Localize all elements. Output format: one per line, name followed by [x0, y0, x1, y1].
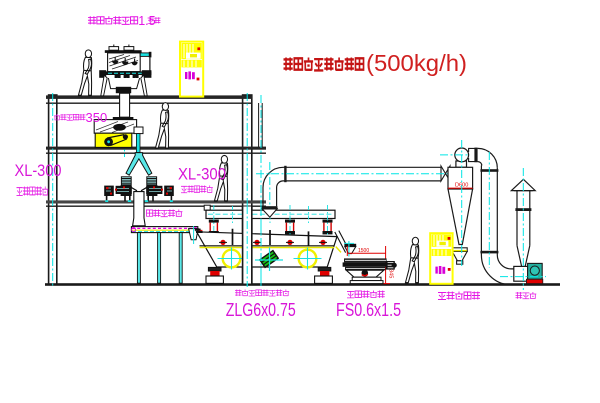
svg-text:1500: 1500 — [358, 248, 369, 254]
svg-text:345: 345 — [388, 269, 394, 278]
svg-text:XL-300: XL-300 — [178, 165, 226, 184]
svg-text:ZLG6x0.75: ZLG6x0.75 — [226, 300, 296, 320]
svg-text:350: 350 — [86, 110, 108, 125]
svg-text:FS0.6x1.5: FS0.6x1.5 — [336, 300, 401, 320]
svg-text:XL-300: XL-300 — [15, 161, 62, 180]
svg-text:1.5: 1.5 — [138, 14, 155, 28]
svg-text:(500kg/h): (500kg/h) — [366, 50, 467, 76]
